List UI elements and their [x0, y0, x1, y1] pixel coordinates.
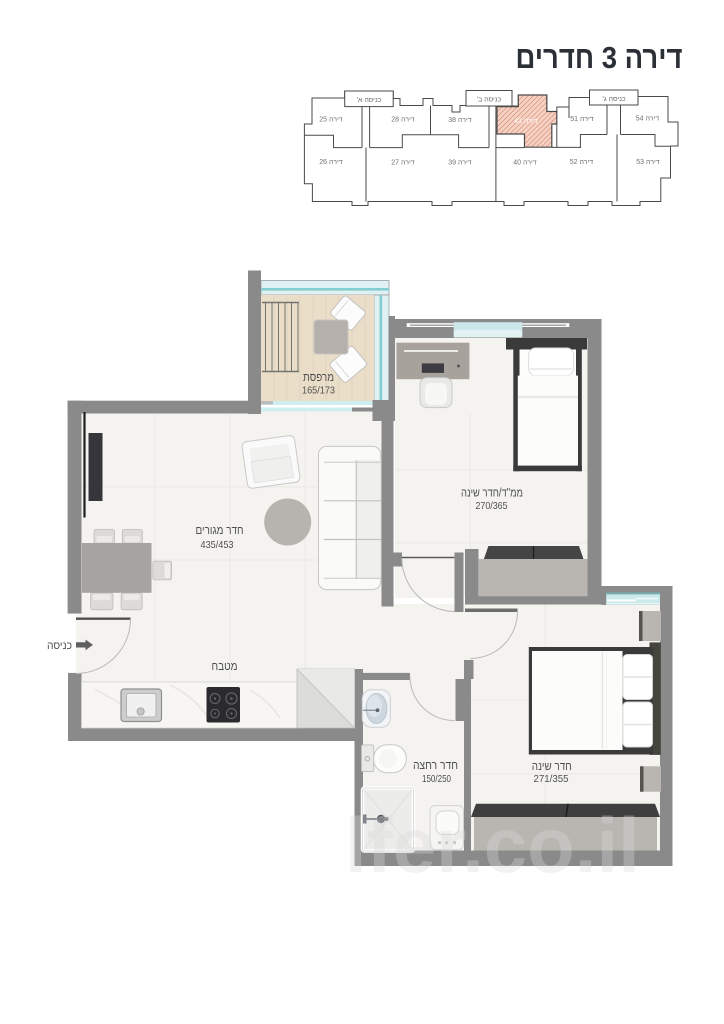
svg-text:270/365: 270/365 — [476, 500, 508, 512]
svg-text:חדר מגורים: חדר מגורים — [196, 525, 244, 537]
svg-text:דירה 40: דירה 40 — [513, 160, 537, 167]
svg-text:lfer.co.il: lfer.co.il — [345, 801, 640, 889]
svg-text:דירה 28: דירה 28 — [391, 117, 415, 124]
svg-text:דירה 38: דירה 38 — [448, 117, 472, 124]
svg-text:כניסה: כניסה — [47, 640, 72, 652]
svg-text:דירה 52: דירה 52 — [570, 159, 594, 166]
svg-text:435/453: 435/453 — [201, 539, 234, 551]
svg-text:דירה 27: דירה 27 — [391, 160, 415, 167]
svg-text:165/173: 165/173 — [302, 385, 335, 397]
svg-text:כניסה א': כניסה א' — [357, 97, 382, 104]
svg-text:כניסה ג': כניסה ג' — [602, 96, 626, 103]
svg-text:דירה 25: דירה 25 — [319, 117, 343, 124]
svg-text:דירה 53: דירה 53 — [636, 159, 660, 166]
svg-text:150/250: 150/250 — [422, 773, 451, 785]
svg-text:חדר רחצה: חדר רחצה — [413, 760, 458, 772]
svg-text:דירה 51: דירה 51 — [570, 116, 594, 123]
svg-text:חדר שינה: חדר שינה — [532, 761, 572, 773]
svg-text:דירה 54: דירה 54 — [636, 116, 660, 123]
svg-text:דירה 3 חדרים: דירה 3 חדרים — [516, 40, 683, 75]
svg-text:דירה 39: דירה 39 — [448, 160, 472, 167]
svg-text:מרפסת: מרפסת — [303, 372, 334, 384]
svg-text:271/355: 271/355 — [534, 773, 569, 785]
svg-text:דירה 41: דירה 41 — [514, 118, 538, 125]
svg-text:ממ"ד/חדר שינה: ממ"ד/חדר שינה — [461, 488, 523, 500]
svg-text:כניסה ב': כניסה ב' — [477, 97, 502, 104]
svg-text:מטבח: מטבח — [212, 661, 238, 673]
svg-text:דירה 26: דירה 26 — [319, 159, 343, 166]
